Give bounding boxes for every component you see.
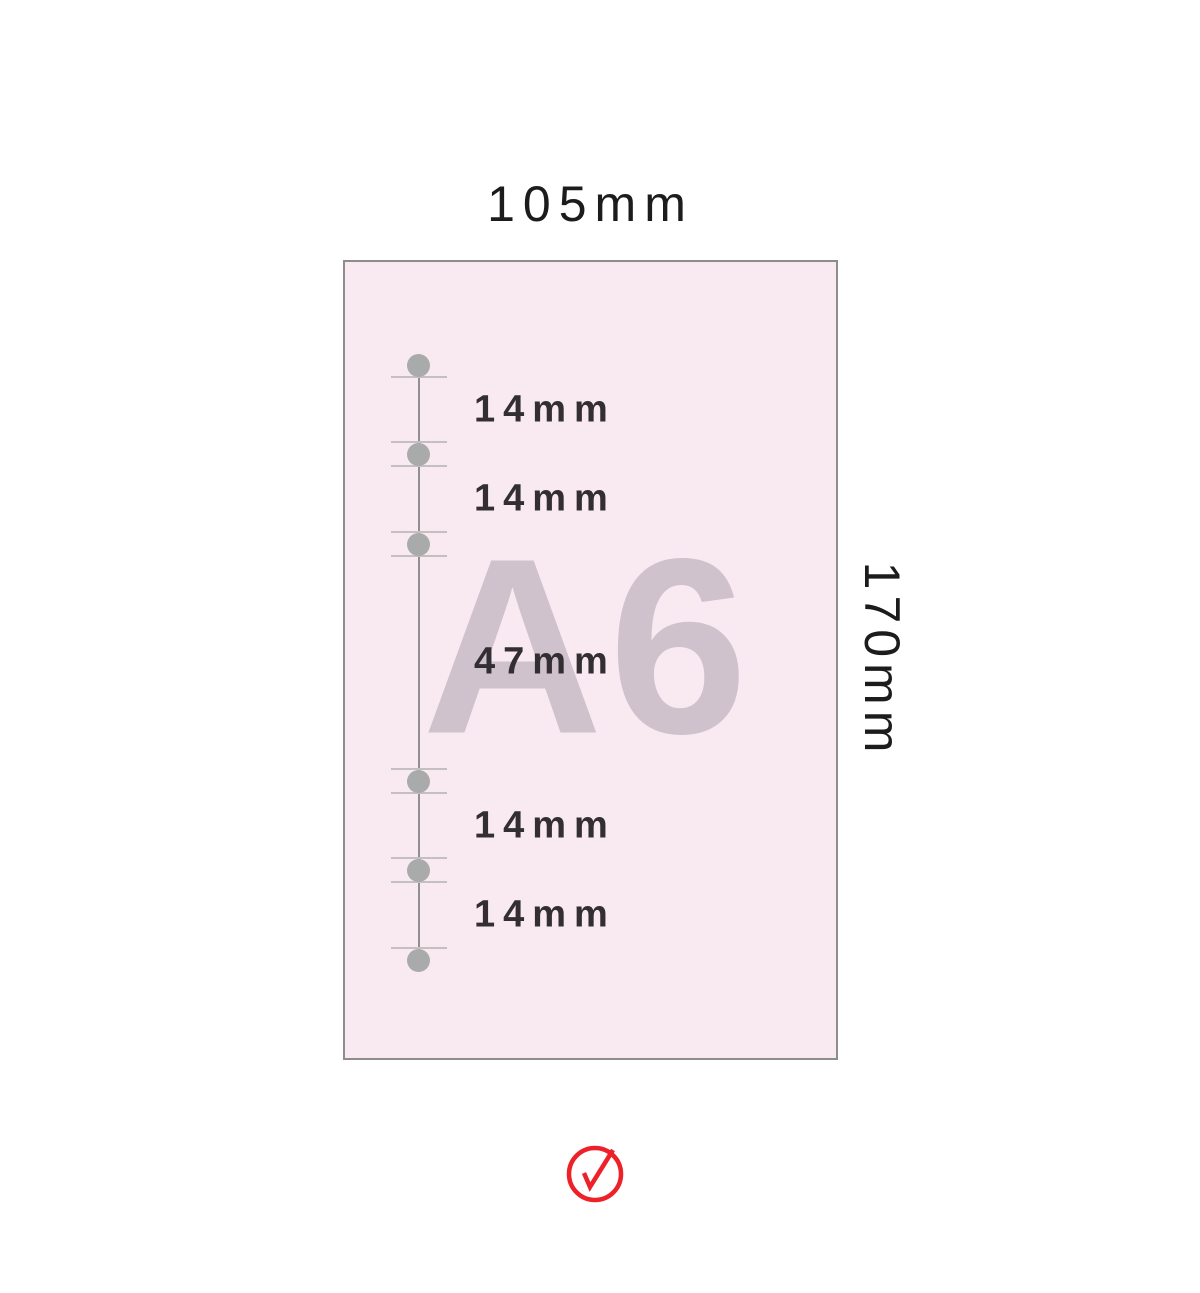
a6-paper: A6 14mm 14mm 47mm 14mm 14mm — [343, 260, 838, 1060]
hole-spacing-label: 14mm — [474, 894, 616, 937]
a6-hole-spacing-infographic: 105mm A6 14mm 14mm 47mm 14mm 14mm 170mm — [0, 0, 1200, 1293]
punch-hole — [407, 770, 430, 793]
punch-hole — [407, 949, 430, 972]
height-dimension-label: 170mm — [853, 562, 911, 759]
hole-spacing-label: 14mm — [474, 478, 616, 521]
punch-hole — [407, 443, 430, 466]
punch-hole — [407, 354, 430, 377]
width-dimension-label: 105mm — [343, 179, 838, 229]
punch-hole — [407, 859, 430, 882]
check-circle-icon — [561, 1137, 631, 1207]
hole-spacing-label: 14mm — [474, 389, 616, 432]
punch-hole — [407, 533, 430, 556]
hole-spacing-label: 47mm — [474, 641, 616, 684]
hole-spacing-label: 14mm — [474, 805, 616, 848]
